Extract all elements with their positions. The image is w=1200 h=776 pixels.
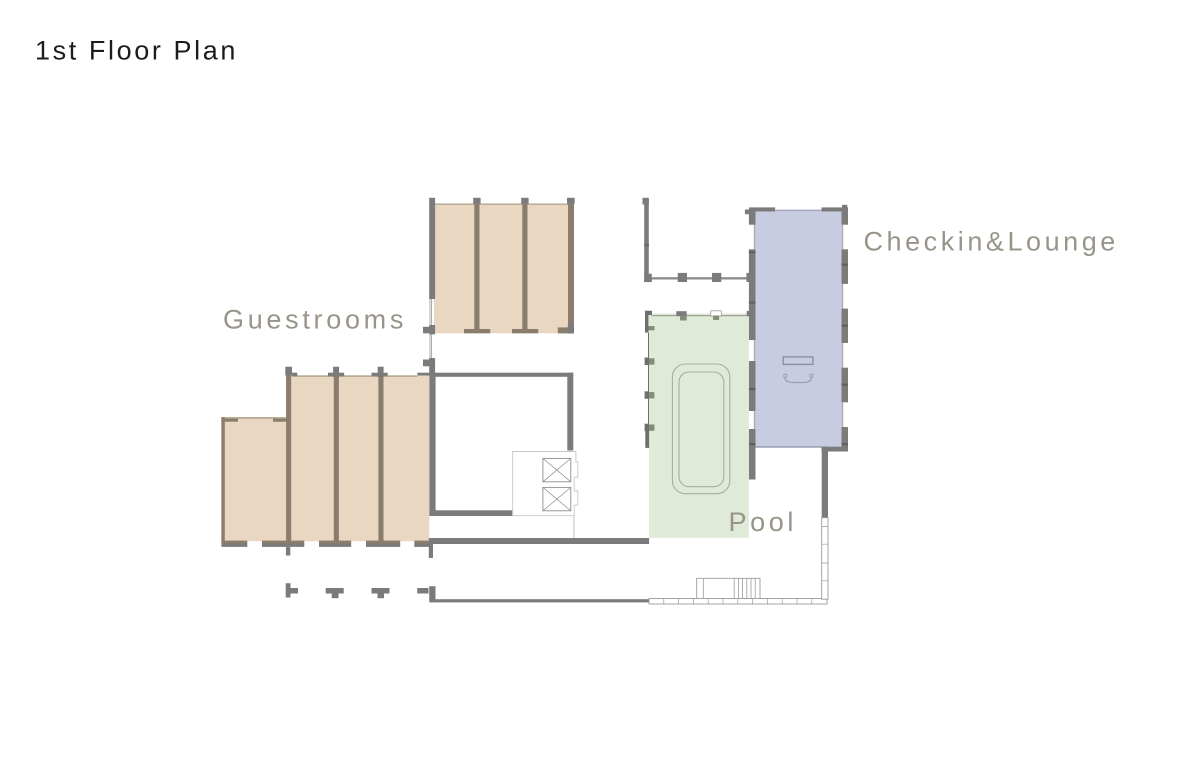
svg-text:Checkin&Lounge: Checkin&Lounge bbox=[864, 227, 1119, 257]
svg-text:1st Floor Plan: 1st Floor Plan bbox=[35, 36, 238, 66]
svg-text:Guestrooms: Guestrooms bbox=[223, 305, 407, 335]
svg-text:Pool: Pool bbox=[729, 507, 797, 537]
